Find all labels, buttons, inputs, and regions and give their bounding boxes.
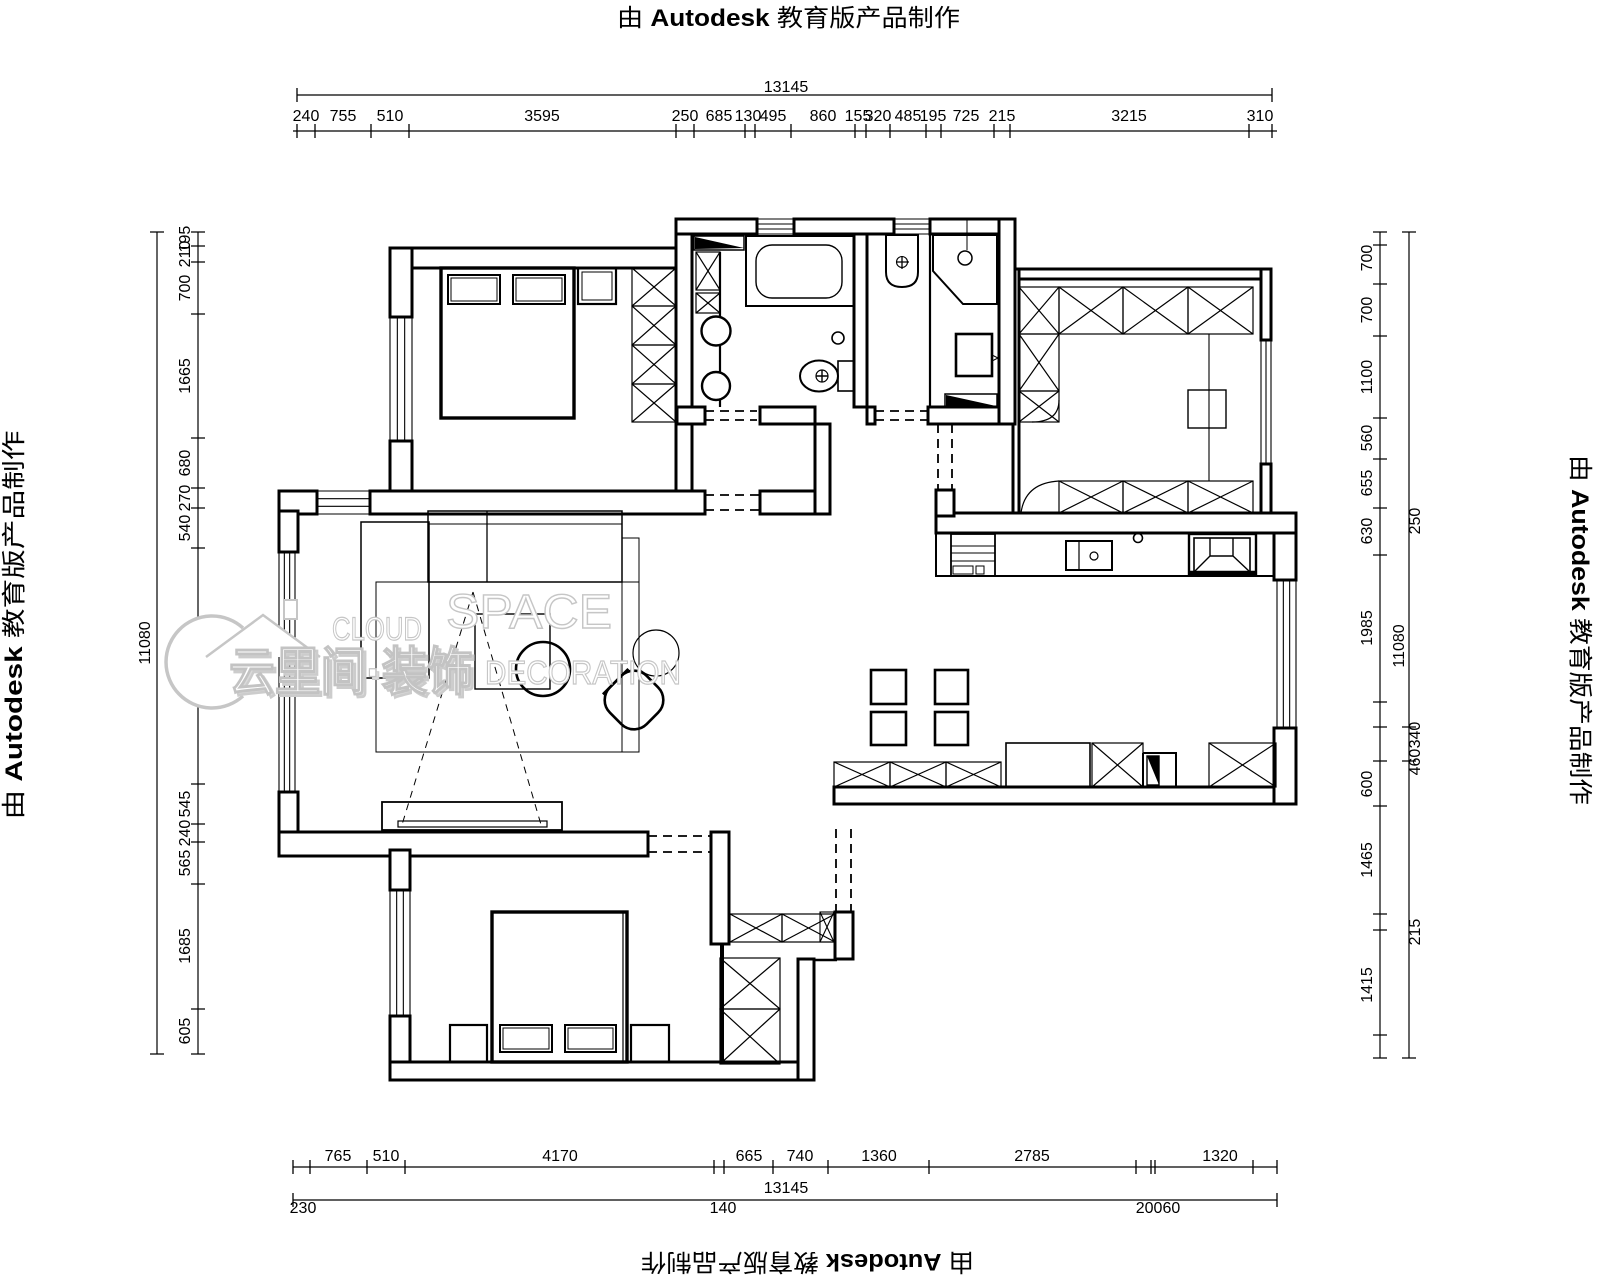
svg-text:1415: 1415	[1359, 967, 1376, 1003]
svg-text:3215: 3215	[1111, 108, 1147, 125]
svg-text:13145: 13145	[764, 1180, 809, 1197]
svg-text:1685: 1685	[177, 928, 194, 964]
svg-text:250: 250	[672, 108, 699, 125]
svg-text:680: 680	[177, 450, 194, 477]
svg-text:240: 240	[293, 108, 320, 125]
svg-text:700: 700	[1359, 297, 1376, 324]
svg-text:140: 140	[710, 1200, 737, 1217]
svg-text:600: 600	[1359, 771, 1376, 798]
svg-text:665: 665	[736, 1148, 763, 1165]
svg-text:485: 485	[895, 108, 922, 125]
svg-text:860: 860	[810, 108, 837, 125]
svg-text:510: 510	[377, 108, 404, 125]
svg-text:700: 700	[1359, 245, 1376, 272]
svg-text:250: 250	[1407, 508, 1424, 535]
svg-text:560: 560	[1359, 425, 1376, 452]
svg-text:545: 545	[177, 791, 194, 818]
svg-text:685: 685	[706, 108, 733, 125]
svg-text:460: 460	[1407, 749, 1424, 776]
svg-text:320: 320	[865, 108, 892, 125]
svg-text:230: 230	[290, 1200, 317, 1217]
svg-text:195: 195	[920, 108, 947, 125]
svg-text:1320: 1320	[1202, 1148, 1238, 1165]
svg-text:由 Autodesk 教育版产品制作: 由 Autodesk 教育版产品制作	[641, 1248, 974, 1275]
svg-text:由 Autodesk 教育版产品制作: 由 Autodesk 教育版产品制作	[1, 430, 28, 819]
svg-text:510: 510	[373, 1148, 400, 1165]
svg-text:4170: 4170	[542, 1148, 578, 1165]
svg-text:1360: 1360	[861, 1148, 897, 1165]
svg-text:210: 210	[177, 241, 194, 268]
svg-text:1985: 1985	[1359, 610, 1376, 646]
svg-text:130: 130	[735, 108, 762, 125]
svg-text:1665: 1665	[177, 358, 194, 394]
svg-text:13145: 13145	[764, 79, 809, 96]
svg-text:725: 725	[953, 108, 980, 125]
svg-text:20060: 20060	[1136, 1200, 1181, 1217]
svg-text:11080: 11080	[137, 621, 154, 664]
svg-text:340: 340	[1407, 722, 1424, 749]
svg-text:DECORATION: DECORATION	[485, 654, 681, 691]
svg-text:1100: 1100	[1359, 360, 1376, 395]
svg-text:565: 565	[177, 850, 194, 877]
svg-text:270: 270	[177, 485, 194, 512]
svg-text:700: 700	[177, 275, 194, 302]
svg-text:605: 605	[177, 1018, 194, 1045]
svg-text:740: 740	[787, 1148, 814, 1165]
svg-text:由 Autodesk 教育版产品制作: 由 Autodesk 教育版产品制作	[617, 5, 960, 32]
svg-text:540: 540	[177, 515, 194, 542]
svg-text:655: 655	[1359, 470, 1376, 497]
svg-text:215: 215	[989, 108, 1016, 125]
svg-text:CLOUD: CLOUD	[332, 611, 422, 647]
svg-text:3595: 3595	[524, 108, 560, 125]
svg-text:240: 240	[177, 820, 194, 847]
svg-text:11080: 11080	[1391, 624, 1408, 667]
svg-text:755: 755	[330, 108, 357, 125]
svg-text:由 Autodesk 教育版产品制作: 由 Autodesk 教育版产品制作	[1566, 455, 1593, 805]
svg-text:310: 310	[1247, 108, 1274, 125]
svg-text:2785: 2785	[1014, 1148, 1050, 1165]
svg-text:SPACE: SPACE	[446, 586, 612, 639]
svg-text:630: 630	[1359, 518, 1376, 545]
svg-text:215: 215	[1407, 919, 1424, 946]
svg-text:765: 765	[325, 1148, 352, 1165]
svg-text:1465: 1465	[1359, 842, 1376, 878]
svg-text:495: 495	[760, 108, 787, 125]
svg-text:云里间·装饰: 云里间·装饰	[229, 644, 473, 702]
